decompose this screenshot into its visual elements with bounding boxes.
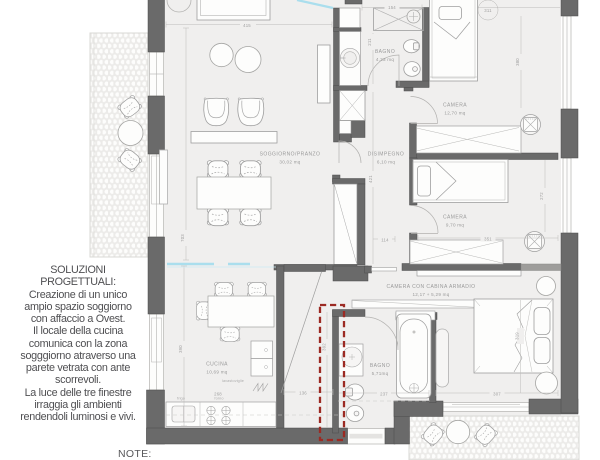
svg-text:12,70 mq: 12,70 mq	[444, 111, 465, 116]
svg-text:frigo: frigo	[177, 397, 185, 401]
svg-text:703: 703	[180, 234, 185, 242]
svg-text:114: 114	[381, 238, 389, 243]
svg-text:CAMERA: CAMERA	[443, 103, 467, 109]
svg-text:CAMERA: CAMERA	[443, 215, 467, 221]
svg-text:12,17 + 5,29 mq: 12,17 + 5,29 mq	[412, 292, 449, 297]
svg-text:392: 392	[322, 343, 327, 351]
svg-text:307: 307	[493, 392, 501, 397]
svg-text:154: 154	[388, 5, 396, 10]
svg-text:351: 351	[484, 237, 492, 242]
svg-text:30,02 mq: 30,02 mq	[279, 160, 300, 165]
svg-text:311: 311	[484, 8, 492, 13]
svg-text:4,23 mq: 4,23 mq	[376, 57, 395, 62]
svg-text:390: 390	[178, 345, 183, 353]
svg-text:380: 380	[515, 58, 520, 66]
svg-text:272: 272	[539, 192, 544, 200]
svg-text:6,10 mq: 6,10 mq	[377, 160, 396, 165]
svg-text:BAGNO: BAGNO	[370, 363, 390, 369]
svg-text:319: 319	[515, 332, 520, 340]
svg-text:9,70 mq: 9,70 mq	[446, 223, 465, 228]
svg-text:SOGGIORNO/PRANZO: SOGGIORNO/PRANZO	[260, 152, 321, 158]
svg-text:136: 136	[299, 391, 307, 396]
svg-text:DISIMPEGNO: DISIMPEGNO	[368, 152, 404, 158]
svg-text:415: 415	[243, 23, 251, 28]
svg-text:CUCINA: CUCINA	[206, 362, 228, 368]
svg-text:lavastoviglie: lavastoviglie	[222, 379, 244, 383]
svg-text:237: 237	[380, 392, 388, 397]
svg-text:5,71mq: 5,71mq	[372, 371, 389, 376]
svg-text:10,69 mq: 10,69 mq	[206, 370, 227, 375]
svg-text:421: 421	[368, 175, 373, 183]
svg-text:CAMERA CON CABINA ARMADIO: CAMERA CON CABINA ARMADIO	[386, 284, 475, 290]
svg-text:268: 268	[214, 392, 222, 397]
svg-text:211: 211	[367, 38, 372, 46]
svg-text:forno: forno	[214, 397, 223, 401]
svg-text:BAGNO: BAGNO	[375, 49, 395, 55]
